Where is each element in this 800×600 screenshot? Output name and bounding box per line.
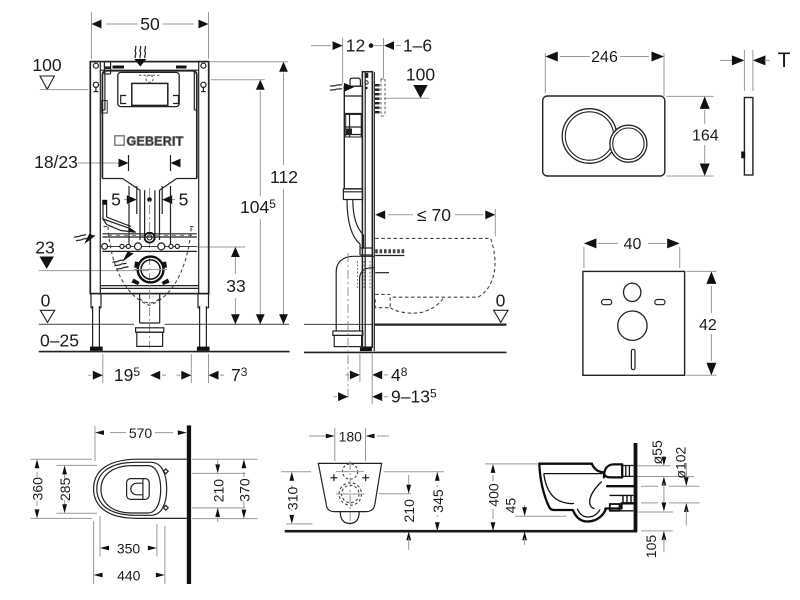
svg-text:45: 45: [503, 498, 519, 514]
svg-text:210: 210: [401, 499, 417, 523]
svg-text:285: 285: [57, 477, 73, 501]
svg-text:345: 345: [430, 489, 446, 513]
svg-text:42: 42: [699, 317, 717, 334]
svg-text:0: 0: [41, 291, 51, 311]
svg-text:400: 400: [486, 483, 502, 507]
svg-text:≤ 70: ≤ 70: [417, 205, 451, 225]
svg-text:0: 0: [496, 291, 506, 311]
svg-text:33: 33: [226, 276, 245, 296]
svg-text:50: 50: [140, 14, 160, 34]
svg-text:164: 164: [692, 128, 719, 145]
svg-text:210: 210: [211, 479, 227, 503]
svg-text:310: 310: [284, 487, 300, 511]
svg-text:5: 5: [179, 190, 189, 210]
svg-text:GEBERIT: GEBERIT: [127, 135, 184, 149]
svg-text:440: 440: [117, 568, 141, 584]
svg-text:180: 180: [339, 429, 363, 445]
svg-text:100: 100: [32, 55, 61, 75]
svg-text:0–25: 0–25: [40, 331, 79, 351]
svg-text:1–6: 1–6: [403, 36, 432, 56]
svg-text:112: 112: [270, 167, 298, 187]
svg-text:5: 5: [111, 190, 121, 210]
svg-text:360: 360: [30, 477, 46, 501]
svg-text:18/23: 18/23: [34, 152, 78, 172]
svg-text:370: 370: [237, 478, 253, 502]
svg-text:570: 570: [129, 425, 153, 441]
svg-text:23: 23: [35, 238, 54, 258]
svg-text:105: 105: [643, 535, 659, 559]
svg-text:12: 12: [346, 36, 365, 56]
svg-text:350: 350: [117, 541, 141, 557]
svg-text:T: T: [778, 49, 791, 72]
svg-text:100: 100: [406, 65, 435, 85]
svg-text:ø55: ø55: [649, 440, 665, 464]
svg-text:246: 246: [591, 49, 618, 66]
svg-text:40: 40: [624, 236, 642, 253]
